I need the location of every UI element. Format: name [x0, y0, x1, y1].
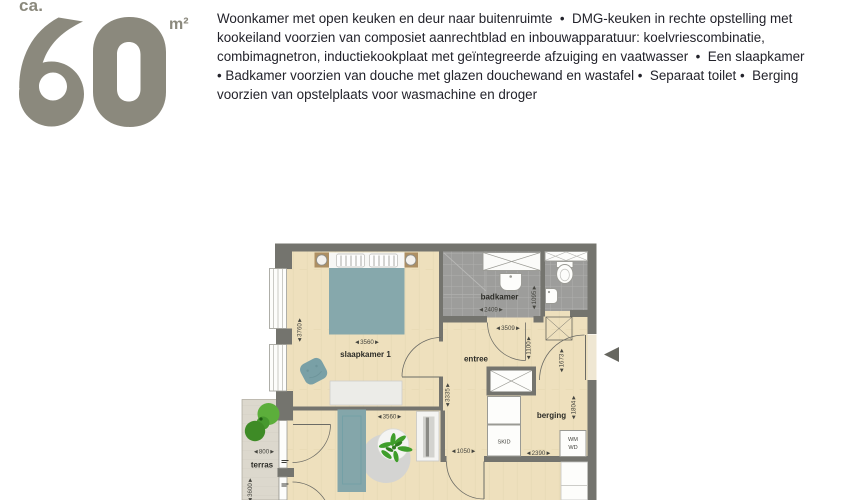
svg-text:◄2409►: ◄2409►	[478, 307, 504, 314]
svg-text:◄1095►: ◄1095►	[531, 284, 538, 310]
svg-text:badkamer: badkamer	[481, 293, 519, 302]
svg-text:◄1804►: ◄1804►	[571, 394, 578, 420]
svg-text:◄1100►: ◄1100►	[526, 335, 533, 361]
svg-text:◄3760►: ◄3760►	[297, 317, 304, 343]
svg-text:◄1050►: ◄1050►	[450, 448, 476, 455]
svg-text:◄1673►: ◄1673►	[559, 347, 566, 373]
svg-text:SKID: SKID	[497, 440, 510, 446]
svg-text:◄3560►: ◄3560►	[354, 339, 380, 346]
svg-text:◄2390►: ◄2390►	[525, 450, 551, 457]
svg-text:WD: WD	[568, 445, 577, 451]
svg-text:◄3335►: ◄3335►	[445, 382, 452, 408]
svg-text:◄3509►: ◄3509►	[495, 325, 521, 332]
svg-text:berging: berging	[537, 411, 566, 420]
svg-text:slaapkamer 1: slaapkamer 1	[340, 350, 391, 359]
svg-text:entree: entree	[464, 355, 489, 364]
svg-text:◄3600►: ◄3600►	[247, 477, 254, 500]
svg-text:◄3560►: ◄3560►	[376, 414, 402, 421]
svg-text:◄800►: ◄800►	[253, 449, 276, 456]
svg-text:WM: WM	[568, 437, 578, 443]
svg-text:terras: terras	[251, 461, 274, 470]
